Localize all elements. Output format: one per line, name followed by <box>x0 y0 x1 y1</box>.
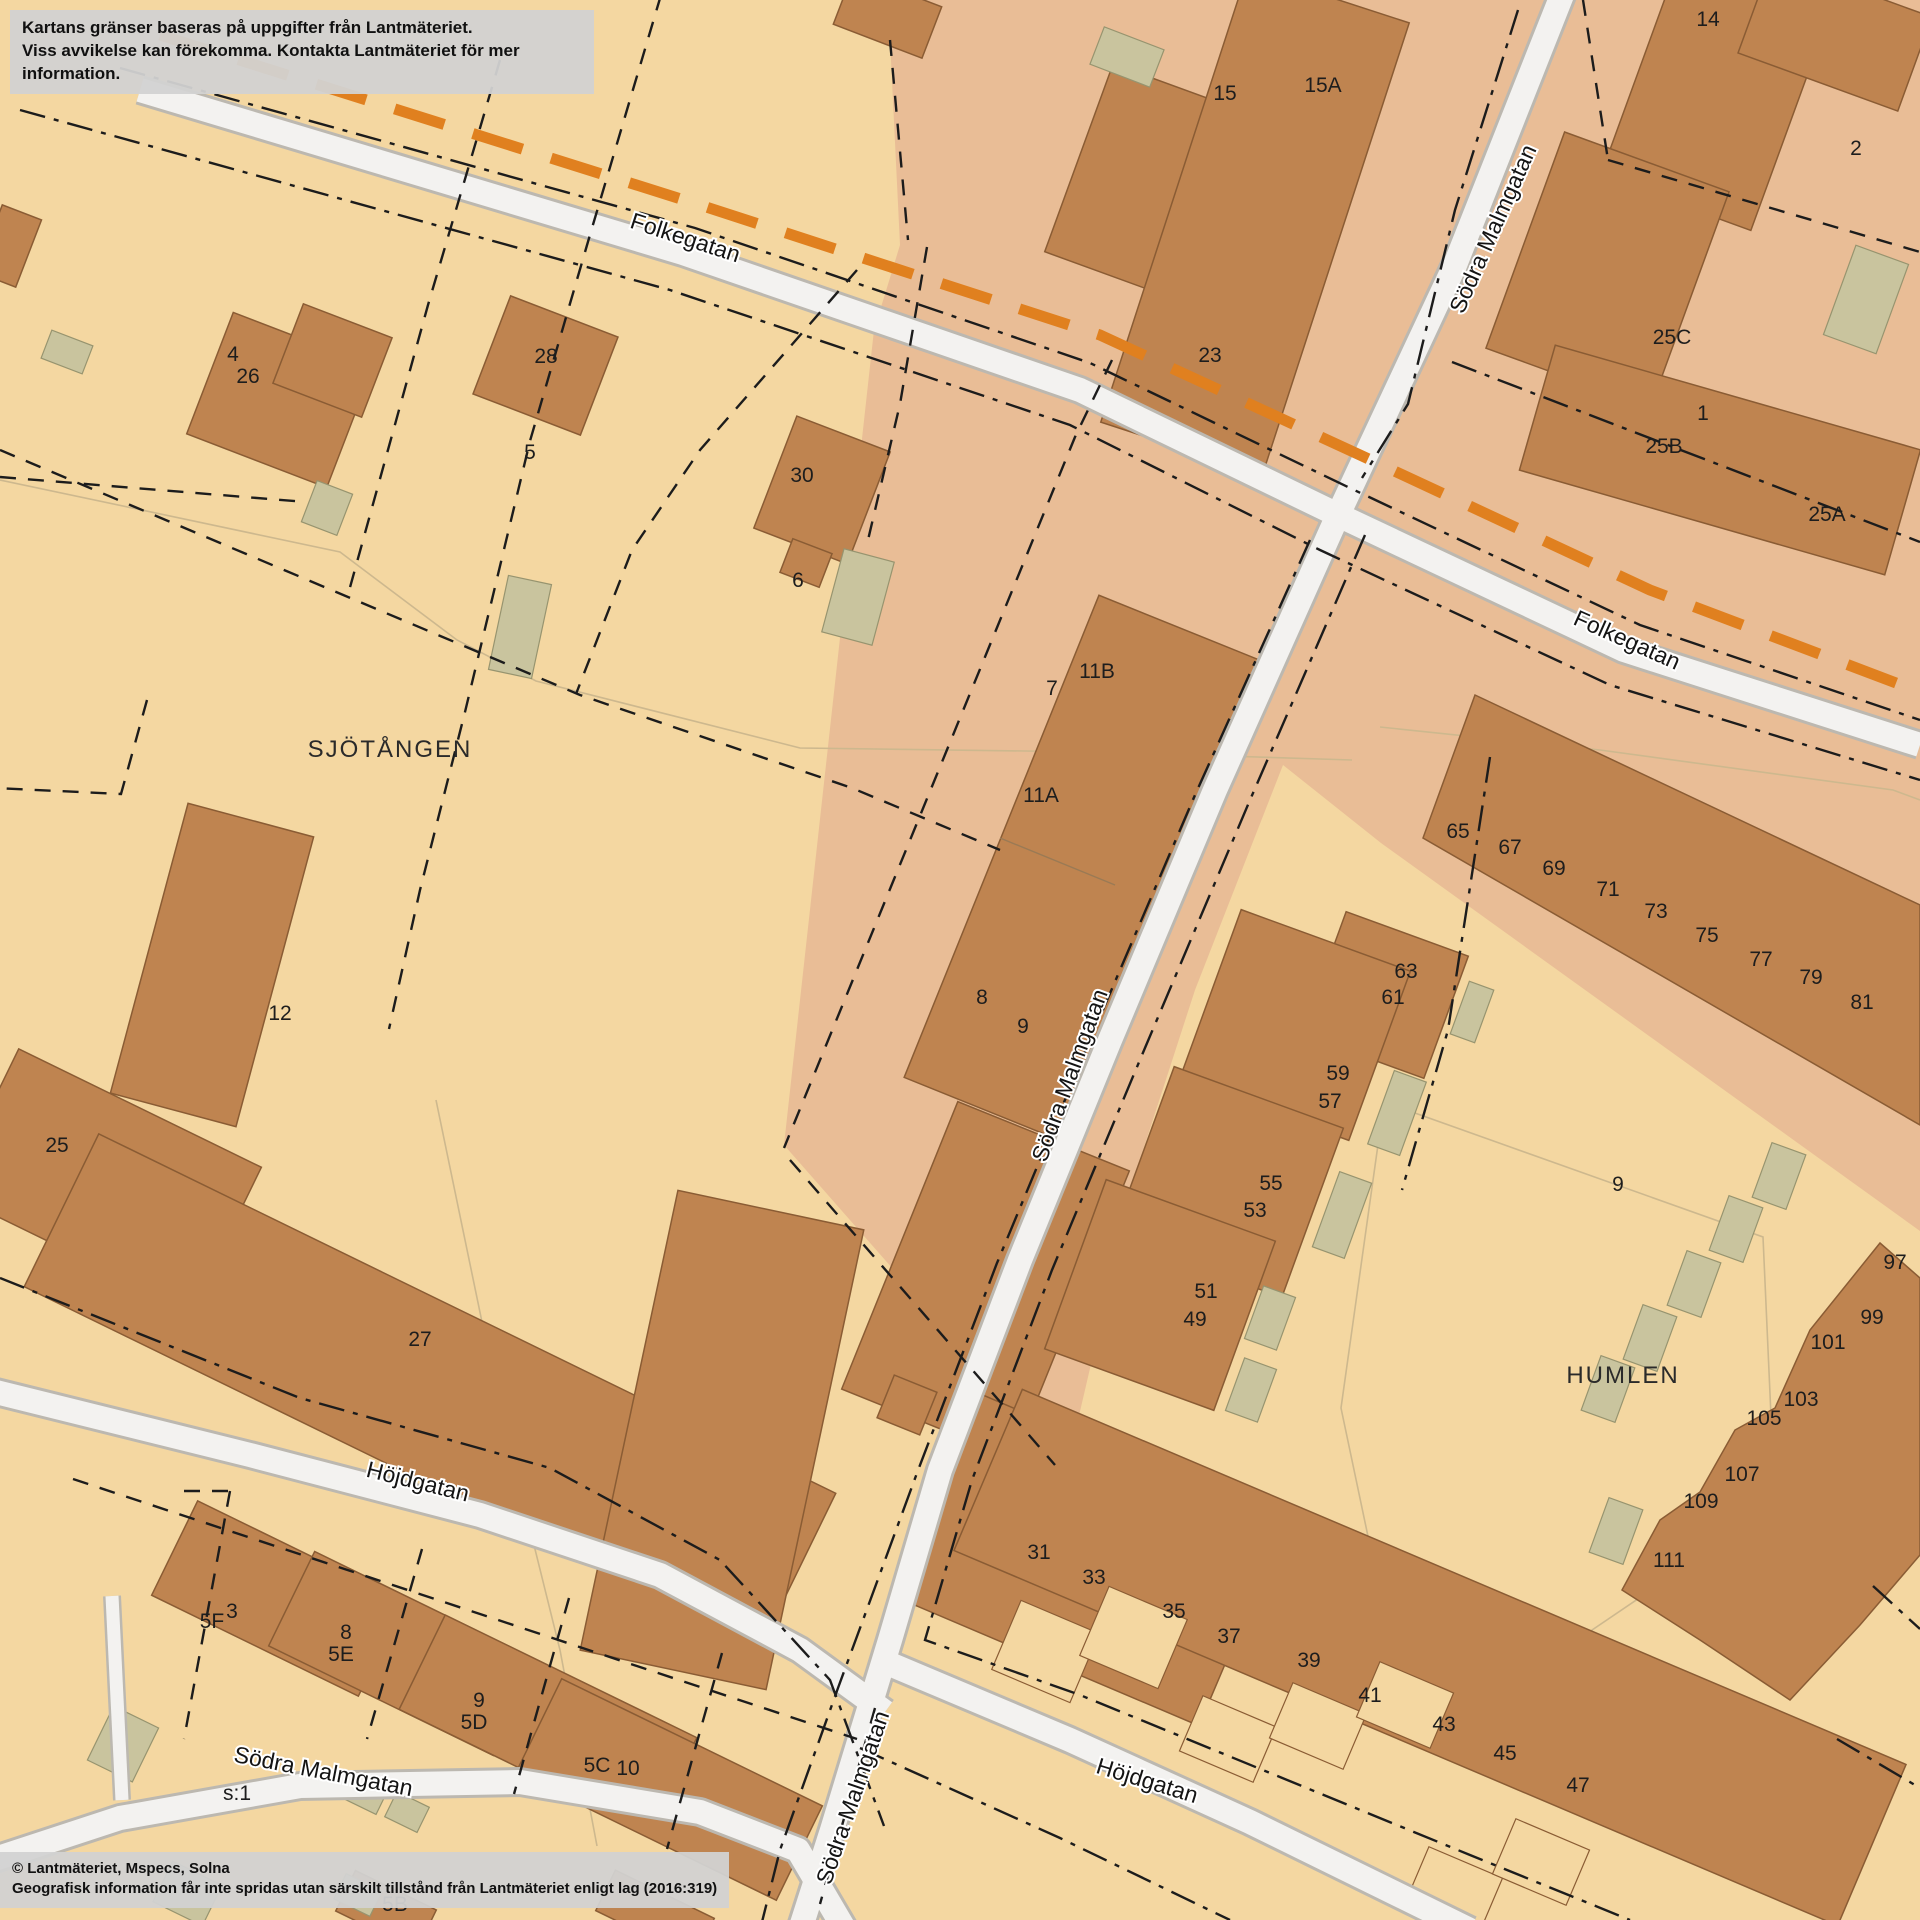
house-number-label-59: 3 <box>226 1600 238 1623</box>
house-number-label-19: 9 <box>1017 1015 1029 1038</box>
house-number-label-39: 49 <box>1183 1308 1206 1331</box>
copyright-line1: © Lantmäteriet, Mspecs, Solna <box>12 1859 717 1879</box>
house-number-label-60: 8 <box>340 1621 352 1644</box>
house-number-label-26: 71 <box>1596 878 1619 901</box>
house-number-label-41: 97 <box>1883 1251 1906 1274</box>
house-number-label-12: 1 <box>1697 402 1709 425</box>
house-number-label-11: 25C <box>1653 326 1692 349</box>
house-number-label-49: 31 <box>1027 1541 1050 1564</box>
house-number-label-21: 25 <box>45 1134 68 1157</box>
house-number-label-29: 77 <box>1749 948 1772 971</box>
house-number-label-17: 11A <box>1023 784 1059 807</box>
house-number-label-65: 10 <box>616 1757 639 1780</box>
house-number-label-10: 2 <box>1850 137 1862 160</box>
house-number-label-16: 11B <box>1079 660 1115 683</box>
house-number-label-4: 30 <box>790 464 813 487</box>
house-number-label-61: 5E <box>328 1643 354 1666</box>
house-number-label-1: 26 <box>236 365 259 388</box>
house-number-label-45: 105 <box>1746 1407 1781 1430</box>
house-number-label-40: 9 <box>1612 1173 1624 1196</box>
district-name-label-1: HUMLEN <box>1566 1362 1679 1389</box>
house-number-label-56: 45 <box>1493 1742 1516 1765</box>
house-number-label-6: 15 <box>1213 82 1236 105</box>
house-number-label-14: 25A <box>1808 503 1845 526</box>
map-viewport[interactable]: 4262853061515A2314225C125B25A711B11A8912… <box>0 0 1920 1920</box>
house-number-label-20: 12 <box>268 1002 291 1025</box>
house-number-label-44: 103 <box>1783 1388 1818 1411</box>
house-number-label-28: 75 <box>1695 924 1718 947</box>
disclaimer-line2: Viss avvikelse kan förekomma. Kontakta L… <box>22 40 582 86</box>
house-number-label-34: 59 <box>1326 1062 1349 1085</box>
house-number-label-48: 111 <box>1653 1549 1685 1572</box>
house-number-label-54: 41 <box>1358 1684 1381 1707</box>
house-number-label-43: 101 <box>1810 1331 1845 1354</box>
house-number-label-22: 27 <box>408 1328 431 1351</box>
house-number-label-58: 5F <box>200 1610 225 1633</box>
house-number-label-5: 6 <box>792 569 804 592</box>
house-number-label-51: 35 <box>1162 1600 1185 1623</box>
house-number-label-50: 33 <box>1082 1566 1105 1589</box>
map-copyright: © Lantmäteriet, Mspecs, Solna Geografisk… <box>0 1852 729 1908</box>
house-number-label-18: 8 <box>976 986 988 1009</box>
house-number-label-3: 5 <box>524 441 536 464</box>
house-number-label-2: 28 <box>534 345 557 368</box>
house-number-label-15: 7 <box>1046 677 1058 700</box>
house-number-label-0: 4 <box>227 343 239 366</box>
house-number-label-37: 53 <box>1243 1199 1266 1222</box>
map-disclaimer: Kartans gränser baseras på uppgifter frå… <box>10 10 594 94</box>
house-number-label-30: 79 <box>1799 966 1822 989</box>
house-number-label-52: 37 <box>1217 1625 1240 1648</box>
copyright-line2: Geografisk information får inte spridas … <box>12 1879 717 1899</box>
district-name-label-0: SJÖTÅNGEN <box>308 735 473 763</box>
house-number-label-53: 39 <box>1297 1649 1320 1672</box>
house-number-label-25: 69 <box>1542 857 1565 880</box>
house-number-label-7: 15A <box>1304 74 1341 97</box>
house-number-label-23: 65 <box>1446 820 1469 843</box>
house-number-label-38: 51 <box>1194 1280 1217 1303</box>
house-number-label-31: 81 <box>1850 991 1873 1014</box>
house-number-label-35: 57 <box>1318 1090 1341 1113</box>
house-number-label-57: 47 <box>1566 1774 1589 1797</box>
house-number-label-13: 25B <box>1645 435 1682 458</box>
house-number-label-24: 67 <box>1498 836 1521 859</box>
house-number-label-46: 107 <box>1724 1463 1759 1486</box>
house-number-label-62: 9 <box>473 1689 485 1712</box>
house-number-label-55: 43 <box>1432 1713 1455 1736</box>
house-number-label-66: s:1 <box>223 1782 251 1805</box>
map-canvas[interactable]: 4262853061515A2314225C125B25A711B11A8912… <box>0 0 1920 1920</box>
house-number-label-47: 109 <box>1683 1490 1718 1513</box>
disclaimer-line1: Kartans gränser baseras på uppgifter frå… <box>22 17 582 40</box>
house-number-label-27: 73 <box>1644 900 1667 923</box>
house-number-label-8: 23 <box>1198 344 1221 367</box>
house-number-label-33: 61 <box>1381 986 1404 1009</box>
house-number-label-36: 55 <box>1259 1172 1282 1195</box>
house-number-label-63: 5D <box>461 1711 488 1734</box>
house-number-label-42: 99 <box>1860 1306 1883 1329</box>
house-number-label-32: 63 <box>1394 960 1417 983</box>
house-number-label-9: 14 <box>1696 8 1720 31</box>
house-number-label-64: 5C <box>584 1754 611 1777</box>
